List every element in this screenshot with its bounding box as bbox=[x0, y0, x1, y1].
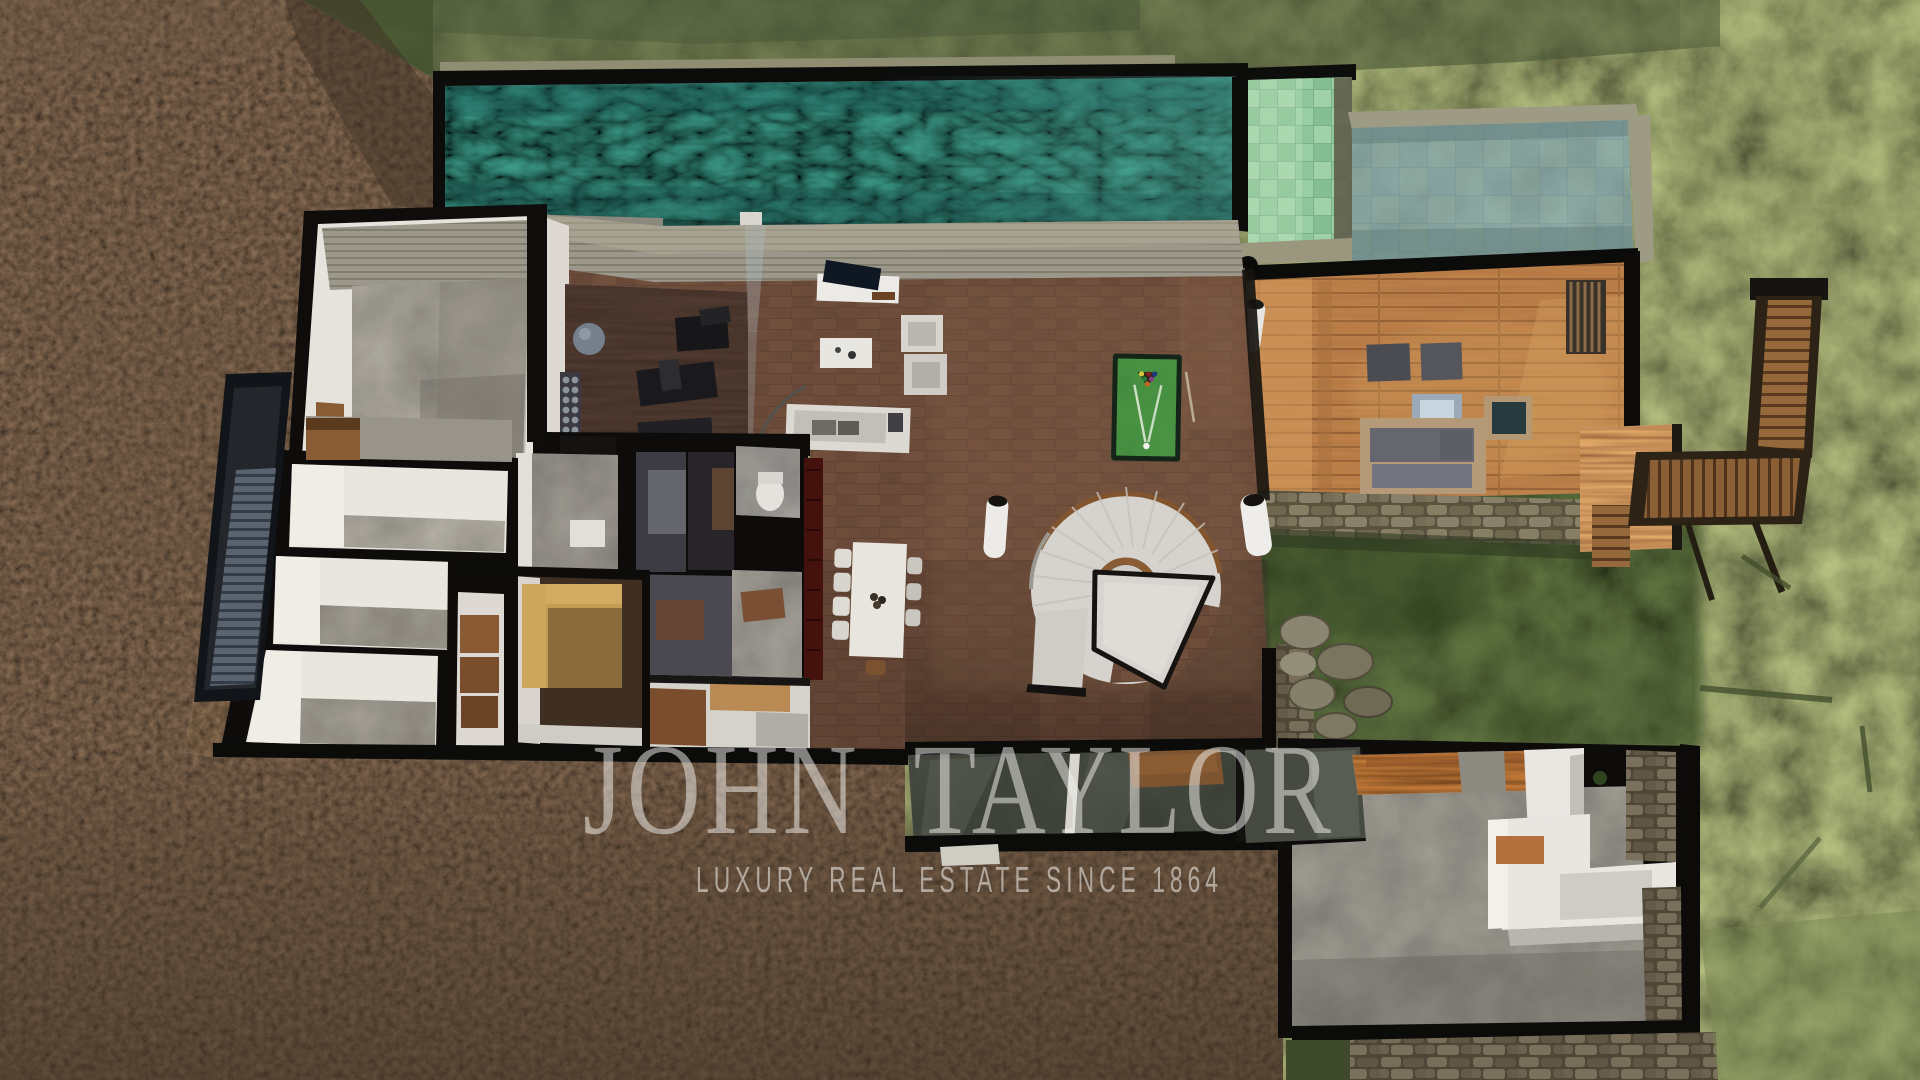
svg-text:LUXURY REAL ESTATE SINCE 1864: LUXURY REAL ESTATE SINCE 1864 bbox=[696, 859, 1223, 900]
svg-text:JOHN TAYLOR: JOHN TAYLOR bbox=[583, 718, 1335, 862]
